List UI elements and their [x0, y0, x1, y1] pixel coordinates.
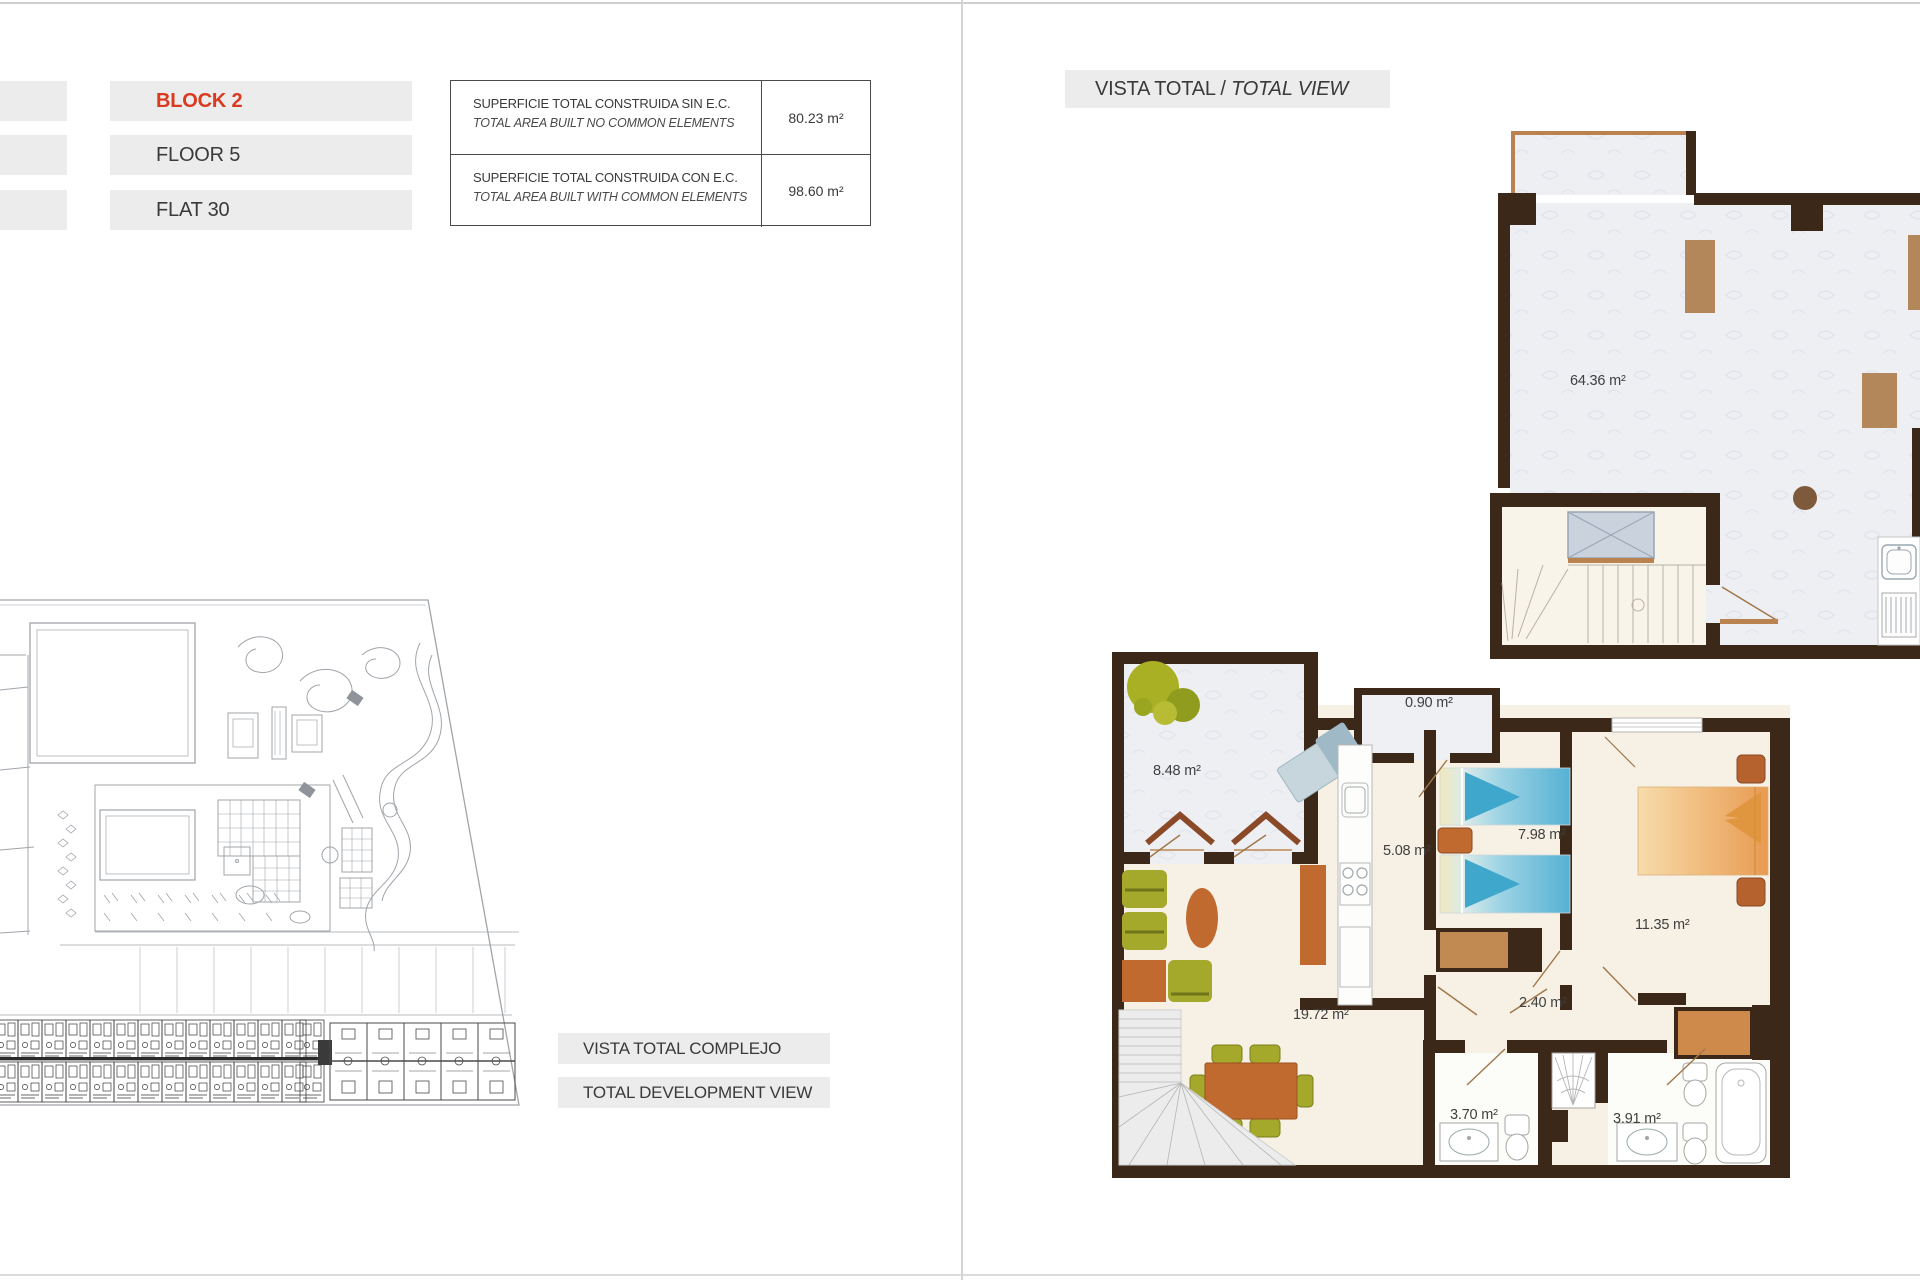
flat-label-box: FLAT 30 [110, 190, 412, 230]
floor-label-box: FLOOR 5 [110, 135, 412, 175]
top-border-line [0, 2, 1920, 4]
floor-label: FLOOR 5 [110, 144, 240, 167]
solarium-plan: 64.36 m² [1488, 125, 1920, 660]
area-value: 98.60 m² [762, 155, 870, 227]
room-area-label-terrace: 8.48 m² [1153, 763, 1201, 779]
site-plan [0, 595, 530, 1115]
table-row: SUPERFICIE TOTAL CONSTRUIDA CON E.C. TOT… [451, 154, 870, 227]
development-view-label-en-box: TOTAL DEVELOPMENT VIEW [558, 1077, 830, 1108]
page-divider-line [961, 0, 963, 1280]
development-view-label-es-box: VISTA TOTAL COMPLEJO [558, 1033, 830, 1064]
flat-label: FLAT 30 [110, 199, 229, 222]
floorplan-sheet: BLOCK 2 FLOOR 5 FLAT 30 SUPERFICIE TOTAL… [0, 0, 1920, 1280]
development-view-label-es: VISTA TOTAL COMPLEJO [558, 1039, 781, 1059]
edge-stub-3 [0, 190, 67, 230]
bottom-border-line [0, 1274, 1920, 1276]
table-row: SUPERFICIE TOTAL CONSTRUIDA SIN E.C. TOT… [451, 81, 870, 154]
area-table: SUPERFICIE TOTAL CONSTRUIDA SIN E.C. TOT… [450, 80, 871, 226]
room-area-label-bath2: 3.91 m² [1613, 1111, 1661, 1127]
room-area-label-living: 19.72 m² [1293, 1007, 1349, 1023]
area-title-es: SUPERFICIE TOTAL CONSTRUIDA CON E.C. [473, 169, 761, 188]
room-area-label-bedroom2: 11.35 m² [1635, 917, 1690, 933]
room-area-label-hall: 2.40 m² [1519, 995, 1567, 1011]
block-label: BLOCK 2 [110, 90, 242, 113]
edge-stub-1 [0, 81, 67, 121]
room-area-label-solarium: 64.36 m² [1570, 373, 1626, 389]
room-area-label-bedroom1: 7.98 m² [1518, 827, 1566, 843]
total-view-label-es: VISTA TOTAL / [1095, 78, 1226, 100]
area-value: 80.23 m² [762, 81, 870, 154]
apartment-rows [0, 1020, 515, 1102]
total-view-label-en: TOTAL VIEW [1231, 78, 1348, 100]
flat-plan: 8.48 m² 0.90 m² 5.08 m² 7.98 m² 11.35 m²… [1105, 645, 1795, 1190]
solarium-plan-drawing [1488, 125, 1920, 660]
area-title-en: TOTAL AREA BUILT NO COMMON ELEMENTS [473, 114, 761, 132]
area-title-es: SUPERFICIE TOTAL CONSTRUIDA SIN E.C. [473, 95, 761, 114]
room-area-label-closet: 0.90 m² [1405, 695, 1453, 711]
site-plan-drawing [0, 595, 530, 1115]
total-view-header-box: VISTA TOTAL / TOTAL VIEW [1065, 70, 1390, 108]
room-area-label-bath1: 3.70 m² [1450, 1107, 1498, 1123]
room-area-label-kitchen: 5.08 m² [1383, 843, 1431, 859]
edge-stub-2 [0, 135, 67, 175]
development-view-label-en: TOTAL DEVELOPMENT VIEW [558, 1083, 812, 1103]
area-title-en: TOTAL AREA BUILT WITH COMMON ELEMENTS [473, 188, 761, 206]
block-label-box: BLOCK 2 [110, 81, 412, 121]
